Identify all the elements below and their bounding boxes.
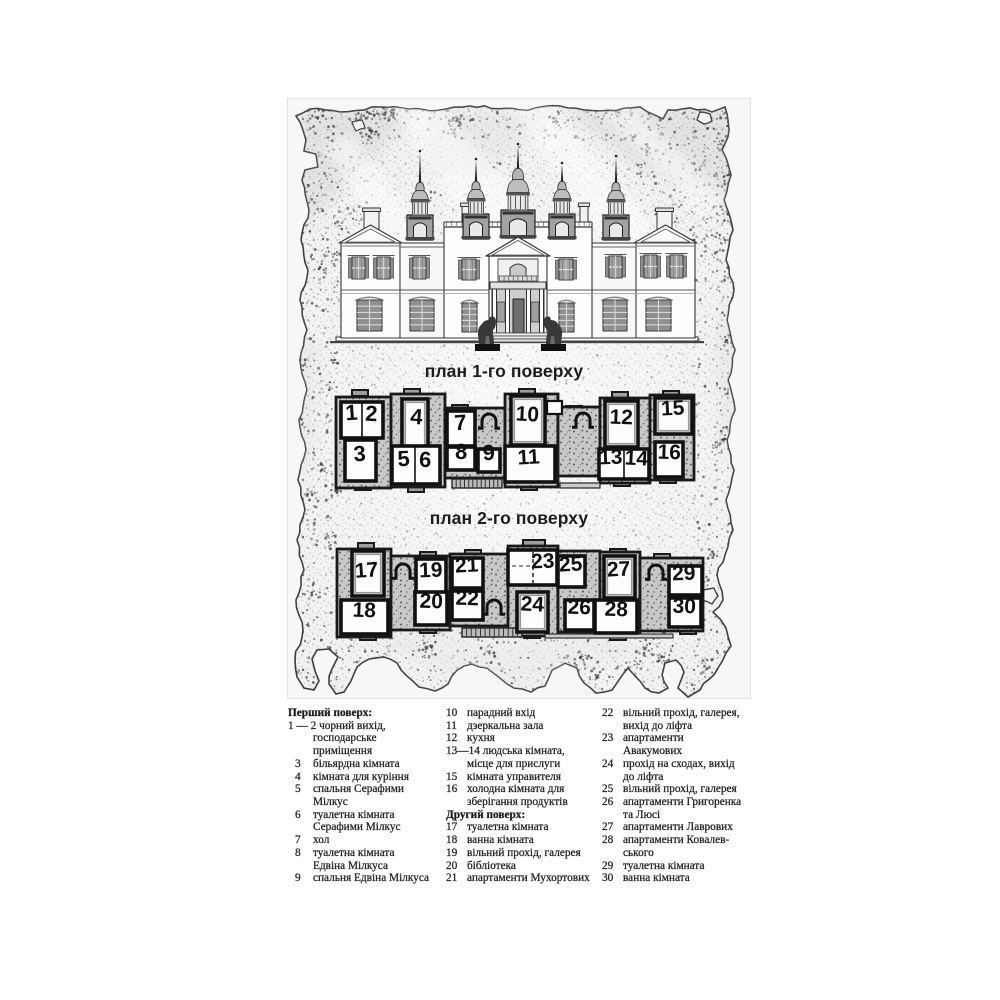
svg-text:20: 20 bbox=[419, 590, 443, 614]
svg-text:23: 23 bbox=[531, 550, 555, 574]
svg-text:19: 19 bbox=[419, 559, 443, 583]
svg-text:16: 16 bbox=[657, 441, 681, 465]
svg-text:24: 24 bbox=[520, 592, 545, 616]
svg-text:5: 5 bbox=[397, 446, 411, 472]
svg-text:2: 2 bbox=[365, 401, 379, 427]
svg-text:8: 8 bbox=[455, 439, 468, 464]
svg-text:9: 9 bbox=[482, 440, 495, 465]
svg-text:29: 29 bbox=[672, 562, 696, 586]
svg-text:28: 28 bbox=[604, 598, 628, 622]
svg-text:13: 13 bbox=[599, 446, 623, 470]
svg-text:14: 14 bbox=[624, 446, 649, 470]
svg-text:11: 11 bbox=[517, 445, 541, 469]
svg-text:12: 12 bbox=[609, 406, 633, 430]
svg-text:17: 17 bbox=[354, 558, 379, 583]
svg-text:6: 6 bbox=[419, 447, 432, 472]
svg-text:25: 25 bbox=[558, 552, 583, 576]
svg-text:7: 7 bbox=[453, 410, 467, 436]
svg-text:26: 26 bbox=[567, 596, 591, 620]
svg-text:10: 10 bbox=[515, 402, 540, 426]
svg-text:27: 27 bbox=[606, 557, 631, 581]
svg-text:30: 30 bbox=[672, 595, 696, 619]
svg-text:21: 21 bbox=[454, 553, 479, 577]
svg-text:3: 3 bbox=[353, 441, 367, 467]
svg-text:22: 22 bbox=[455, 587, 479, 611]
svg-text:1: 1 bbox=[344, 400, 358, 426]
svg-text:15: 15 bbox=[660, 396, 685, 420]
svg-text:18: 18 bbox=[352, 599, 376, 623]
